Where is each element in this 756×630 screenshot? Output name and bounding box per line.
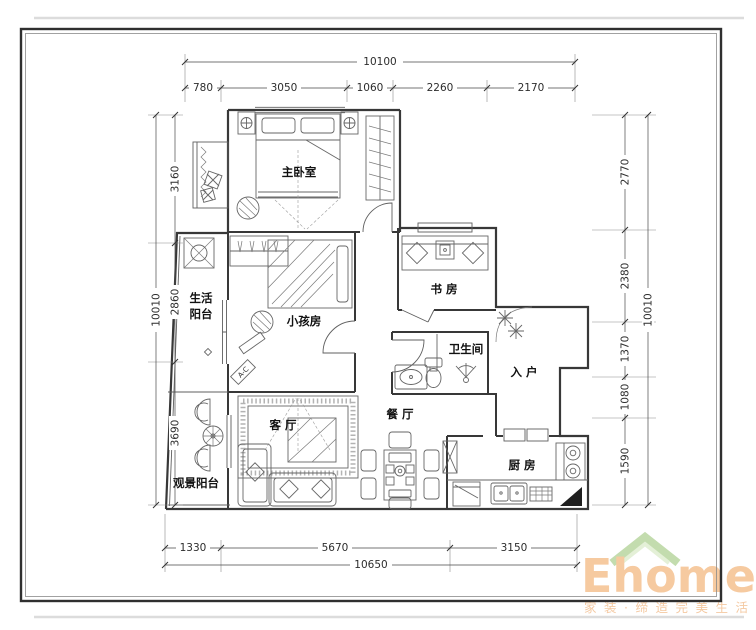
dim-bottom-total: 10650 [354, 559, 387, 571]
flue-column [443, 441, 457, 473]
floor-drain [204, 348, 211, 355]
master-wardrobe [366, 116, 394, 200]
bathroom-door [392, 340, 424, 372]
pillow [301, 118, 334, 133]
dim-top-seg-4: 2170 [518, 82, 545, 94]
plant-icon [237, 197, 259, 219]
label-dining: 餐 厅 [385, 407, 414, 421]
ac-unit-label: A-C [236, 365, 250, 379]
dim-right-seg-0: 2770 [620, 159, 632, 186]
logo-watermark: Ehome8 家装·缔造完美生活 [581, 537, 756, 615]
kitchen-furniture [443, 441, 588, 506]
dim-top-seg-2: 1060 [357, 82, 384, 94]
dimension-chain-top: 10100 780 3050 1060 2260 2170 [182, 54, 578, 102]
dim-left-total: 10010 [151, 293, 163, 326]
label-life-balcony-1: 生活 [190, 291, 213, 305]
entrance-plant-icon [497, 310, 524, 339]
washing-machine [184, 238, 214, 268]
pillow [280, 480, 298, 498]
view-balcony-furniture [195, 399, 223, 471]
doors [323, 203, 548, 441]
dim-bottom-seg-1: 5670 [322, 542, 349, 554]
page-frame [21, 18, 744, 617]
entrance-area [496, 307, 532, 342]
kids-room-furniture [230, 236, 352, 354]
living-room-furniture [238, 396, 358, 506]
dimension-chain-left: 3160 2860 3690 10010 [148, 112, 183, 508]
dim-bottom-seg-0: 1330 [180, 542, 207, 554]
entry-door-leaf-left [504, 429, 525, 441]
label-view-balcony: 观景阳台 [173, 476, 219, 490]
label-kitchen: 厨 房 [508, 458, 535, 472]
label-bathroom: 卫生间 [449, 342, 484, 356]
shower-icon [456, 363, 476, 383]
entry-door-leaf-right [527, 429, 548, 441]
chair [361, 478, 376, 499]
dim-top-seg-3: 2260 [427, 82, 454, 94]
logo-brand: Ehome8 [581, 549, 756, 603]
balcony-chair [195, 399, 210, 425]
dim-right-seg-4: 1590 [620, 448, 632, 475]
ceiling-projection-lines [275, 150, 338, 230]
dim-right-seg-2: 1370 [620, 336, 632, 363]
dining-furniture [361, 432, 439, 509]
plant-icon [251, 311, 273, 333]
pillow [462, 242, 483, 263]
label-entrance: 入 户 [510, 365, 537, 379]
label-master-bedroom: 主卧室 [282, 165, 317, 179]
master-door [363, 203, 392, 232]
dim-left-seg-1: 2860 [170, 289, 182, 316]
dim-right-total: 10010 [643, 293, 655, 326]
chair [361, 450, 376, 471]
dim-left-seg-2: 3690 [170, 420, 182, 447]
corner-counter [560, 487, 582, 506]
pillow [406, 242, 427, 263]
study-furniture [402, 236, 488, 270]
sink [395, 365, 427, 389]
fridge [453, 482, 480, 506]
drain-board [530, 487, 552, 501]
pillow [262, 118, 295, 133]
living-balcony-window [227, 415, 231, 468]
entrance-curve [496, 307, 532, 342]
balcony-table [203, 426, 223, 446]
dimension-chain-bottom: 1330 5670 3150 10650 [162, 514, 580, 572]
kitchen-sink [491, 483, 527, 504]
kids-door [323, 321, 355, 353]
stove [556, 443, 585, 480]
frame-border-inner [26, 34, 717, 597]
study-door [402, 310, 434, 322]
dim-right-seg-3: 1080 [620, 384, 632, 411]
kids-bed [268, 240, 352, 308]
dim-bottom-seg-2: 3150 [501, 542, 528, 554]
dim-top-seg-1: 3050 [271, 82, 298, 94]
logo-tagline: 家装·缔造完美生活 [584, 600, 755, 615]
lamp-icon [241, 118, 252, 129]
label-study: 书 房 [430, 282, 457, 296]
chair [389, 432, 411, 448]
kids-wardrobe [230, 236, 288, 266]
kids-balcony-slider [223, 300, 227, 364]
outer-walls [166, 110, 588, 509]
dim-top-total: 10100 [363, 56, 396, 68]
dim-top-seg-0: 780 [193, 82, 213, 94]
ac-unit-marker: A-C [231, 360, 256, 385]
chair [424, 478, 439, 499]
dim-left-seg-0: 3160 [170, 166, 182, 193]
label-life-balcony-2: 阳台 [190, 307, 213, 321]
label-living: 客 厅 [268, 418, 297, 432]
pillow [312, 480, 330, 498]
dim-right-seg-1: 2380 [620, 263, 632, 290]
floorplan-canvas: Ehome8 家装·缔造完美生活 [0, 0, 756, 630]
lamp-icon [344, 118, 355, 129]
floorplan-page: Ehome8 家装·缔造完美生活 [0, 0, 756, 630]
dimension-chain-right: 2770 2380 1370 1080 1590 10010 [592, 112, 656, 508]
floorplan-drawing: A-C 主卧室 小孩房 书 房 卫生间 入 户 餐 厅 客 厅 厨 房 生活 阳… [166, 107, 588, 509]
toilet [425, 358, 442, 388]
label-kids-room: 小孩房 [286, 314, 322, 328]
balcony-chair [195, 445, 210, 471]
kids-desk [239, 332, 265, 353]
table-setting [386, 453, 414, 497]
bay-window-plant [201, 171, 222, 202]
chair [424, 450, 439, 471]
